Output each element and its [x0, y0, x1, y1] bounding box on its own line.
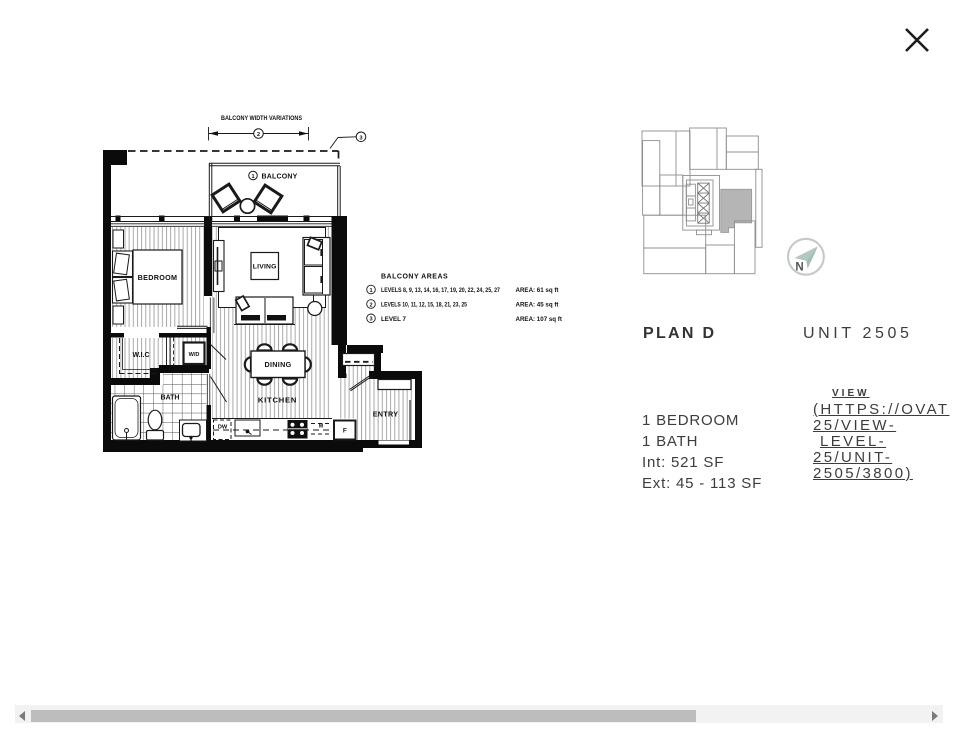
svg-text:AREA: 61 sq ft: AREA: 61 sq ft: [516, 287, 559, 294]
svg-text:ENTRY: ENTRY: [373, 410, 399, 419]
svg-text:BALCONY: BALCONY: [261, 174, 297, 181]
svg-text:KITCHEN: KITCHEN: [258, 396, 297, 405]
svg-text:W.I.C: W.I.C: [132, 352, 149, 359]
svg-text:3: 3: [369, 317, 372, 323]
svg-text:LEVELS 8, 9, 13, 14, 16, 17, 1: LEVELS 8, 9, 13, 14, 16, 17, 19, 20, 22,…: [381, 287, 500, 294]
svg-text:N: N: [795, 262, 803, 274]
svg-text:AREA: 107 sq ft: AREA: 107 sq ft: [516, 316, 562, 323]
svg-text:F: F: [343, 428, 347, 435]
svg-text:DW: DW: [218, 425, 228, 431]
svg-text:BATH: BATH: [161, 395, 180, 402]
svg-text:LEVELS 10, 11, 12, 15, 18, 21,: LEVELS 10, 11, 12, 15, 18, 21, 23, 25: [381, 302, 467, 309]
svg-text:DINING: DINING: [265, 360, 292, 369]
svg-text:AREA: 45 sq ft: AREA: 45 sq ft: [516, 302, 559, 309]
svg-text:LIVING: LIVING: [253, 264, 277, 271]
svg-text:1: 1: [369, 288, 372, 294]
svg-text:M: M: [319, 424, 324, 430]
svg-text:LEVEL 7: LEVEL 7: [381, 316, 407, 323]
svg-text:2: 2: [257, 132, 260, 138]
svg-text:BEDROOM: BEDROOM: [138, 273, 178, 282]
svg-text:BALCONY AREAS: BALCONY AREAS: [381, 274, 448, 281]
svg-text:1: 1: [251, 174, 254, 180]
svg-text:2: 2: [369, 302, 372, 308]
svg-text:BALCONY WIDTH VARIATIONS: BALCONY WIDTH VARIATIONS: [221, 115, 303, 122]
svg-text:W/D: W/D: [189, 352, 200, 358]
